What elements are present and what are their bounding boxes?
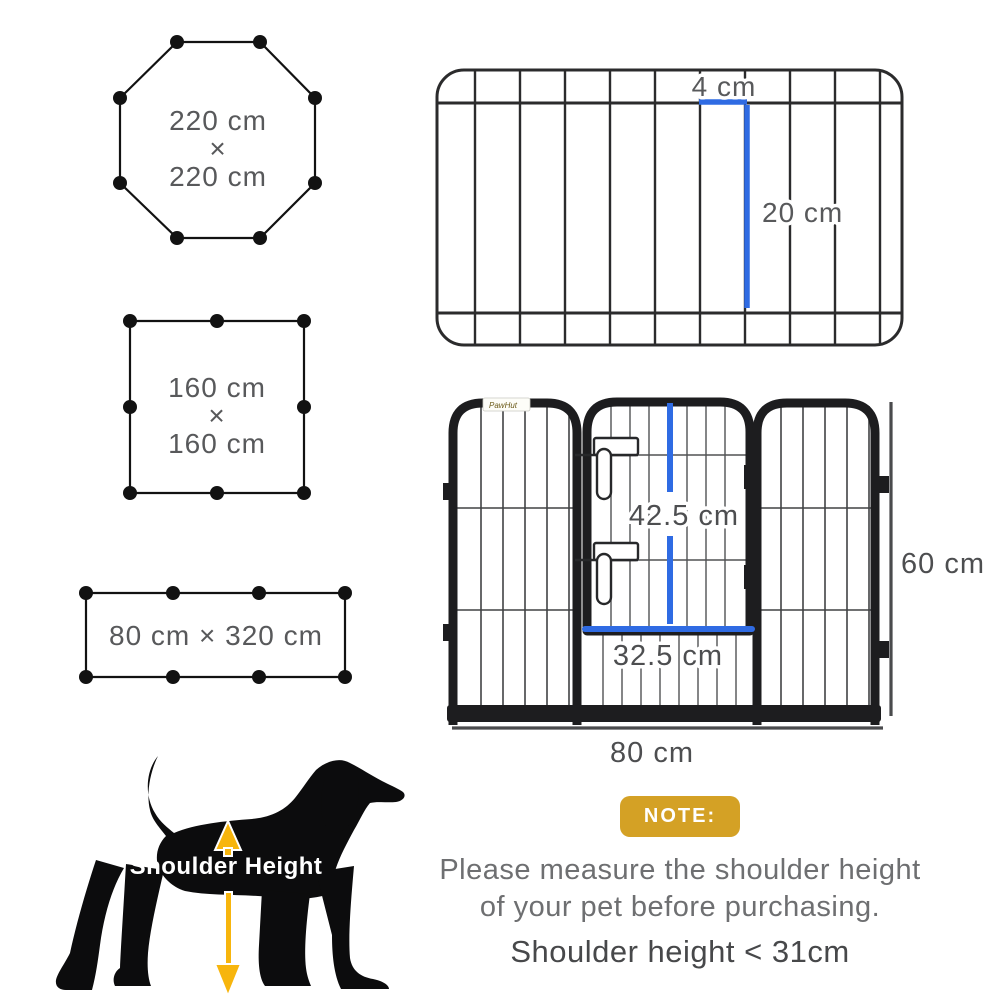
note-badge: NOTE: xyxy=(620,796,740,837)
square-layout-diagram: 160 cm × 160 cm xyxy=(123,314,311,500)
door-width-label: 32.5 cm xyxy=(613,640,723,672)
square-dim-2: 160 cm xyxy=(168,428,266,459)
brand-tag: PawHut xyxy=(483,398,530,411)
page: { "colors": { "measure_blue": "#2f6be3",… xyxy=(0,0,1000,1000)
rectangle-layout-diagram: 80 cm × 320 cm xyxy=(79,586,352,684)
bottom-rail xyxy=(447,705,881,722)
note-shoulder-height-limit: Shoulder height < 31cm xyxy=(400,934,960,970)
shoulder-height-label: Shoulder Height xyxy=(130,853,323,880)
door-height-label: 42.5 cm xyxy=(629,500,739,532)
note-section: NOTE: Please measure the shoulder height… xyxy=(400,796,960,970)
dog-shoulder-height-figure: Shoulder Height xyxy=(56,756,405,996)
square-times: × xyxy=(208,400,225,431)
octagon-dim-1: 220 cm xyxy=(169,105,267,136)
note-text-line-1: Please measure the shoulder height xyxy=(400,852,960,889)
panel-height-label: 60 cm xyxy=(901,548,985,580)
left-panel-wires xyxy=(457,406,573,712)
right-panel-frame xyxy=(757,403,875,725)
square-dim-1: 160 cm xyxy=(168,372,266,403)
left-panel-frame xyxy=(453,403,577,725)
rectangle-dim: 80 cm × 320 cm xyxy=(109,620,323,651)
panel-width-label: 80 cm xyxy=(610,737,694,769)
brand-text: PawHut xyxy=(489,401,518,410)
panel-front-view: PawHut 42.5 cm 32.5 cm 60 cm 80 cm xyxy=(443,398,985,769)
gap-label: 4 cm xyxy=(692,71,757,102)
right-panel-wires xyxy=(761,406,871,712)
octagon-dim-2: 220 cm xyxy=(169,161,267,192)
octagon-layout-diagram: 220 cm × 220 cm xyxy=(113,35,322,245)
shoulder-height-arrow xyxy=(215,821,241,996)
octagon-times: × xyxy=(209,133,226,164)
note-text-line-2: of your pet before purchasing. xyxy=(400,889,960,926)
bar-height-label: 20 cm xyxy=(762,197,843,228)
panel-grid-top-view: 4 cm 20 cm xyxy=(437,70,902,345)
